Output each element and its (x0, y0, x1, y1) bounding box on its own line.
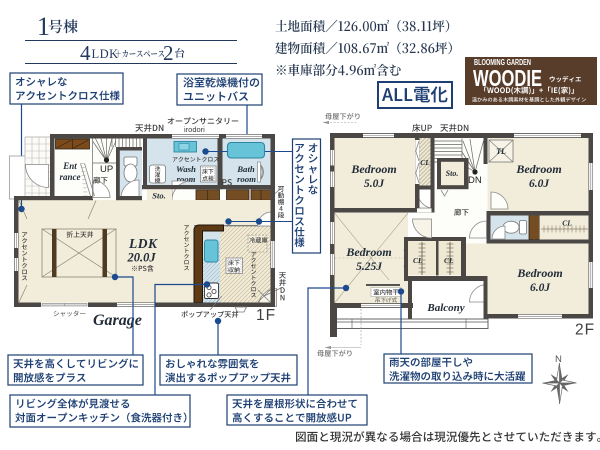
svg-text:TL: TL (496, 147, 506, 156)
svg-text:1F: 1F (256, 307, 276, 324)
svg-text:Bedroom: Bedroom (515, 162, 561, 176)
svg-text:rance: rance (60, 172, 81, 182)
svg-text:4: 4 (80, 41, 91, 65)
svg-text:WOODIE: WOODIE (473, 65, 542, 91)
svg-text:CL: CL (413, 256, 423, 265)
svg-text:irodori: irodori (184, 125, 205, 134)
svg-text:6.0J: 6.0J (529, 178, 550, 190)
svg-text:Sto.: Sto. (152, 191, 165, 201)
svg-text:Balcony: Balcony (426, 302, 464, 314)
svg-text:CL: CL (420, 158, 430, 167)
svg-text:6.0J: 6.0J (530, 282, 551, 294)
svg-text:LDK: LDK (92, 47, 119, 61)
svg-text:N: N (555, 354, 562, 365)
svg-text:Garage: Garage (93, 312, 142, 329)
svg-text:2F: 2F (575, 322, 595, 339)
svg-text:DN: DN (468, 175, 482, 186)
svg-text:UP: UP (100, 164, 113, 175)
svg-text:CL: CL (562, 219, 572, 228)
svg-text:room: room (237, 174, 256, 184)
svg-text:2: 2 (163, 41, 174, 65)
svg-text:Bath: Bath (236, 164, 255, 174)
svg-text:Ent: Ent (62, 161, 77, 171)
svg-text:5.25J: 5.25J (356, 261, 383, 273)
svg-text:LDK: LDK (128, 236, 158, 251)
svg-text:Bedroom: Bedroom (345, 245, 391, 259)
svg-text:5.0J: 5.0J (364, 178, 385, 190)
svg-text:Bedroom: Bedroom (350, 162, 396, 176)
svg-text:1: 1 (37, 12, 50, 41)
svg-text:Bedroom: Bedroom (516, 266, 562, 280)
svg-text:Wash: Wash (176, 164, 196, 174)
svg-text:CL: CL (444, 256, 454, 265)
svg-text:Sto.: Sto. (446, 169, 459, 178)
svg-text:20.0J: 20.0J (127, 251, 157, 265)
